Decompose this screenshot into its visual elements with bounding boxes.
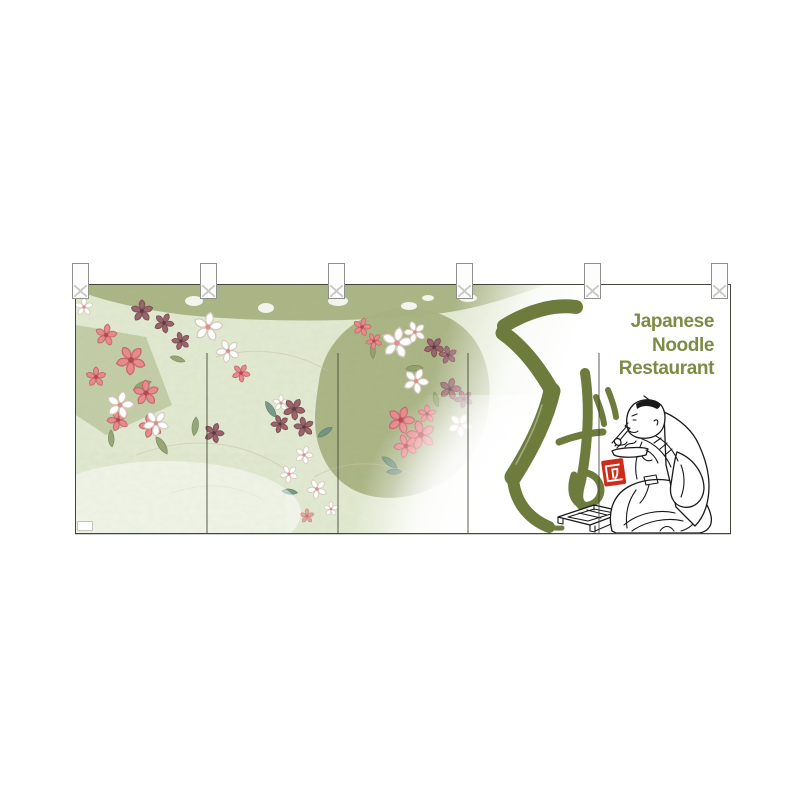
- stitch-x-icon: [586, 285, 599, 297]
- brand-line-3: Restaurant: [619, 357, 714, 381]
- product-photo: Japanese Noodle Restaurant: [0, 0, 800, 800]
- stitch-x-icon: [74, 285, 87, 297]
- hanging-tab: [328, 263, 345, 299]
- hanging-tab: [711, 263, 728, 299]
- stitch-x-icon: [330, 285, 343, 297]
- brand-line-2: Noodle: [619, 334, 714, 358]
- stitch-x-icon: [458, 285, 471, 297]
- stitch-x-icon: [713, 285, 726, 297]
- artisan-seal: [601, 458, 626, 487]
- noren-curtain: Japanese Noodle Restaurant: [75, 284, 731, 534]
- hanging-tab: [584, 263, 601, 299]
- hanging-tab: [200, 263, 217, 299]
- brand-tag: [77, 521, 93, 531]
- hanging-tab: [456, 263, 473, 299]
- hanging-tab: [72, 263, 89, 299]
- brand-line-1: Japanese: [619, 310, 714, 334]
- restaurant-name-text: Japanese Noodle Restaurant: [619, 310, 714, 381]
- stitch-x-icon: [202, 285, 215, 297]
